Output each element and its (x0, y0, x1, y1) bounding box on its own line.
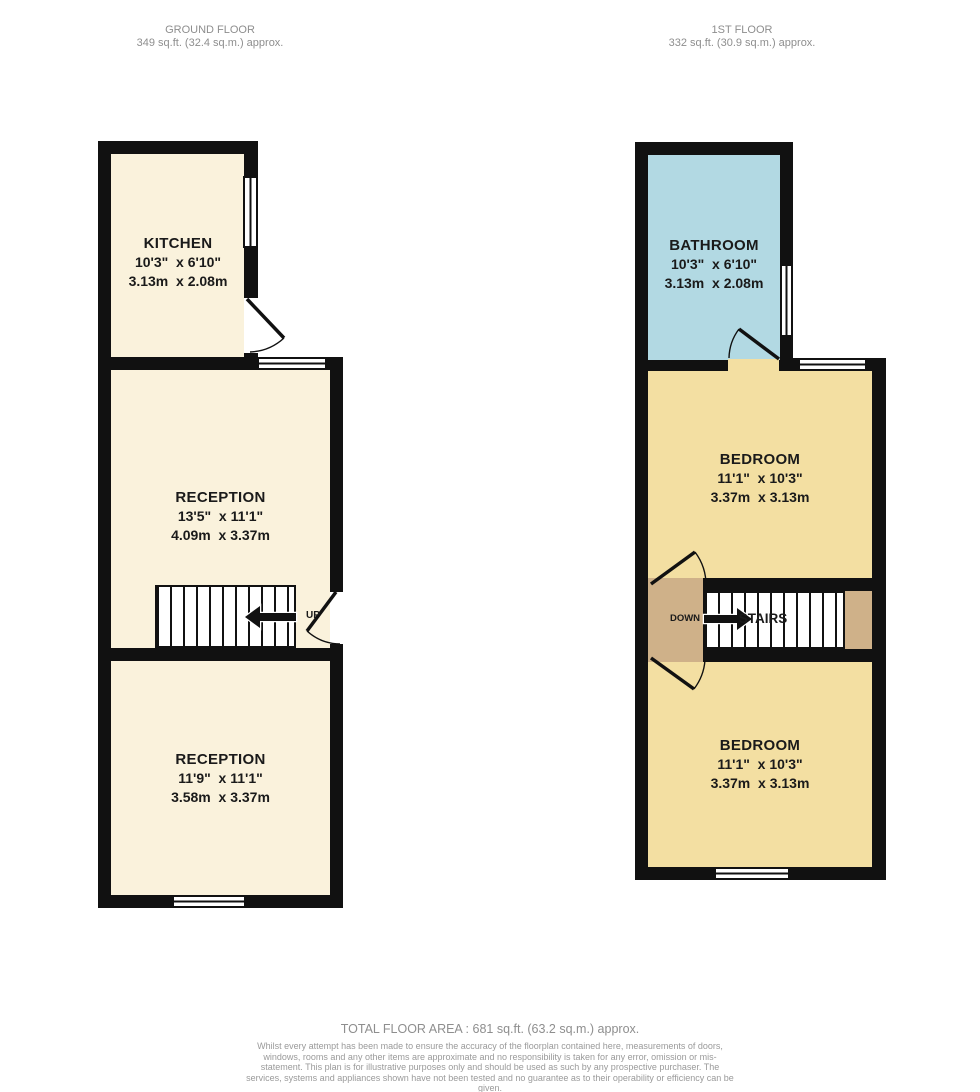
reception2-metric: 3.58m x 3.37m (111, 788, 330, 807)
stairs-right-landing (845, 591, 872, 649)
first-floor-header: 1ST FLOOR 332 sq.ft. (30.9 sq.m.) approx… (592, 24, 892, 50)
bathroom-imperial: 10'3" x 6'10" (648, 255, 780, 274)
bedroom2-door-icon (645, 650, 715, 695)
bedroom1-window (798, 358, 867, 371)
kitchen-window (243, 176, 258, 248)
reception1-imperial: 13'5" x 11'1" (111, 507, 330, 526)
bathroom-label: BATHROOM 10'3" x 6'10" 3.13m x 2.08m (648, 236, 780, 293)
up-label: UP (298, 610, 328, 621)
bedroom2-name: BEDROOM (648, 736, 872, 755)
ground-floor-title: GROUND FLOOR (60, 24, 360, 37)
kitchen-door-icon (230, 290, 310, 365)
bedroom2-imperial: 11'1" x 10'3" (648, 755, 872, 774)
reception2-window (172, 895, 246, 908)
first-floor-area: 332 sq.ft. (30.9 sq.m.) approx. (592, 37, 892, 50)
kitchen-name: KITCHEN (111, 234, 245, 253)
kitchen-metric: 3.13m x 2.08m (111, 272, 245, 291)
ground-floor-area: 349 sq.ft. (32.4 sq.m.) approx. (60, 37, 360, 50)
stairs-up-arrow-icon (240, 600, 300, 636)
reception1-label: RECEPTION 13'5" x 11'1" 4.09m x 3.37m (111, 488, 330, 545)
reception2-name: RECEPTION (111, 750, 330, 769)
bedroom1-metric: 3.37m x 3.13m (648, 488, 872, 507)
bedroom1-door-icon (645, 545, 715, 590)
bedroom2-window (714, 867, 790, 880)
reception1-metric: 4.09m x 3.37m (111, 526, 330, 545)
floorplan-page: GROUND FLOOR 349 sq.ft. (32.4 sq.m.) app… (0, 0, 980, 1092)
bathroom-name: BATHROOM (648, 236, 780, 255)
reception2-imperial: 11'9" x 11'1" (111, 769, 330, 788)
bathroom-metric: 3.13m x 2.08m (648, 274, 780, 293)
stairs-label: STAIRS (733, 611, 793, 626)
kitchen-label: KITCHEN 10'3" x 6'10" 3.13m x 2.08m (111, 234, 245, 291)
down-label: DOWN (660, 613, 710, 624)
bedroom1-name: BEDROOM (648, 450, 872, 469)
bedroom1-imperial: 11'1" x 10'3" (648, 469, 872, 488)
reception1-name: RECEPTION (111, 488, 330, 507)
bedroom2-label: BEDROOM 11'1" x 10'3" 3.37m x 3.13m (648, 736, 872, 793)
ground-floor-header: GROUND FLOOR 349 sq.ft. (32.4 sq.m.) app… (60, 24, 360, 50)
total-floor-area: TOTAL FLOOR AREA : 681 sq.ft. (63.2 sq.m… (0, 1022, 980, 1036)
first-floor-title: 1ST FLOOR (592, 24, 892, 37)
kitchen-imperial: 10'3" x 6'10" (111, 253, 245, 272)
bedroom1-label: BEDROOM 11'1" x 10'3" 3.37m x 3.13m (648, 450, 872, 507)
reception2-label: RECEPTION 11'9" x 11'1" 3.58m x 3.37m (111, 750, 330, 807)
bathroom-door-icon (720, 320, 785, 365)
bedroom2-metric: 3.37m x 3.13m (648, 774, 872, 793)
disclaimer-text: Whilst every attempt has been made to en… (245, 1041, 735, 1092)
